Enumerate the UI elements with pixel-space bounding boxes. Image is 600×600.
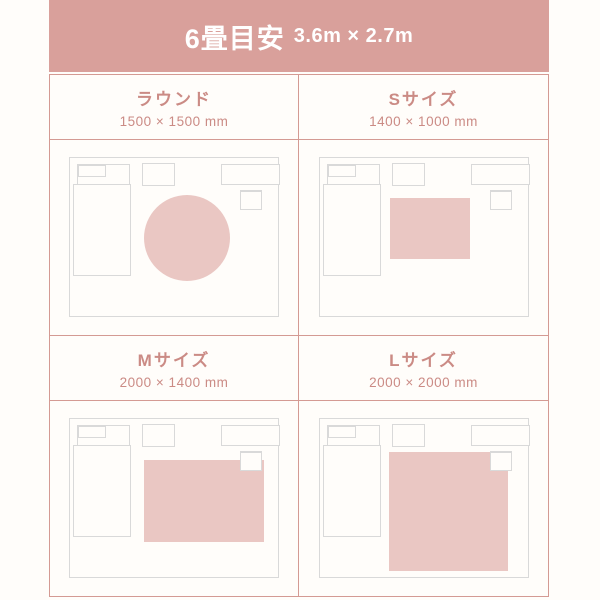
nightstand xyxy=(392,163,425,186)
room-outline xyxy=(69,418,279,578)
room-outline xyxy=(319,418,529,578)
rug-size-s xyxy=(390,198,470,259)
desk xyxy=(471,164,530,185)
chair-seat-line xyxy=(491,452,511,453)
chair xyxy=(490,190,512,210)
chair-seat-line xyxy=(241,191,261,192)
room-size-header: 6畳目安 3.6m × 2.7m xyxy=(49,0,549,72)
chair xyxy=(240,451,262,471)
size-card-round: ラウンド 1500 × 1500 mm xyxy=(50,75,299,336)
room-diagram xyxy=(50,140,298,335)
size-name: Lサイズ xyxy=(389,346,458,371)
bed-pillow xyxy=(328,426,356,438)
nightstand xyxy=(142,424,175,447)
rug-round xyxy=(144,195,230,281)
size-card-header: Sサイズ 1400 × 1000 mm xyxy=(299,75,548,140)
size-dimensions: 1400 × 1000 mm xyxy=(369,114,478,129)
room-diagram xyxy=(299,401,548,596)
size-card-s: Sサイズ 1400 × 1000 mm xyxy=(299,75,548,336)
desk xyxy=(221,425,280,446)
bed-headboard xyxy=(77,164,130,186)
size-card-header: ラウンド 1500 × 1500 mm xyxy=(50,75,298,140)
nightstand xyxy=(142,163,175,186)
bed-pillow xyxy=(78,426,106,438)
nightstand xyxy=(392,424,425,447)
size-name: Mサイズ xyxy=(138,346,211,371)
room-outline xyxy=(69,157,279,317)
size-dimensions: 2000 × 2000 mm xyxy=(369,375,478,390)
size-name: ラウンド xyxy=(136,85,212,110)
chair xyxy=(240,190,262,210)
bed-headboard xyxy=(327,425,380,447)
room-size-title: 6畳目安 xyxy=(185,17,285,56)
bed xyxy=(323,184,381,276)
size-dimensions: 1500 × 1500 mm xyxy=(120,114,229,129)
rug-size-guide: 6畳目安 3.6m × 2.7m ラウンド 1500 × 1500 mm xyxy=(49,0,549,597)
size-card-header: Mサイズ 2000 × 1400 mm xyxy=(50,336,298,401)
bed-headboard xyxy=(77,425,130,447)
bed-pillow xyxy=(78,165,106,177)
size-grid: ラウンド 1500 × 1500 mm xyxy=(49,74,549,597)
bed xyxy=(323,445,381,537)
chair-seat-line xyxy=(491,191,511,192)
size-card-l: Lサイズ 2000 × 2000 mm xyxy=(299,336,548,596)
size-name: Sサイズ xyxy=(389,85,459,110)
bed-headboard xyxy=(327,164,380,186)
chair xyxy=(490,451,512,471)
bed xyxy=(73,184,131,276)
bed xyxy=(73,445,131,537)
size-card-m: Mサイズ 2000 × 1400 mm xyxy=(50,336,299,596)
size-dimensions: 2000 × 1400 mm xyxy=(120,375,229,390)
room-diagram xyxy=(299,140,548,335)
rug-size-m xyxy=(144,460,264,542)
room-outline xyxy=(319,157,529,317)
desk xyxy=(471,425,530,446)
chair-seat-line xyxy=(241,452,261,453)
desk xyxy=(221,164,280,185)
size-card-header: Lサイズ 2000 × 2000 mm xyxy=(299,336,548,401)
room-diagram xyxy=(50,401,298,596)
bed-pillow xyxy=(328,165,356,177)
room-dimensions: 3.6m × 2.7m xyxy=(294,25,413,48)
